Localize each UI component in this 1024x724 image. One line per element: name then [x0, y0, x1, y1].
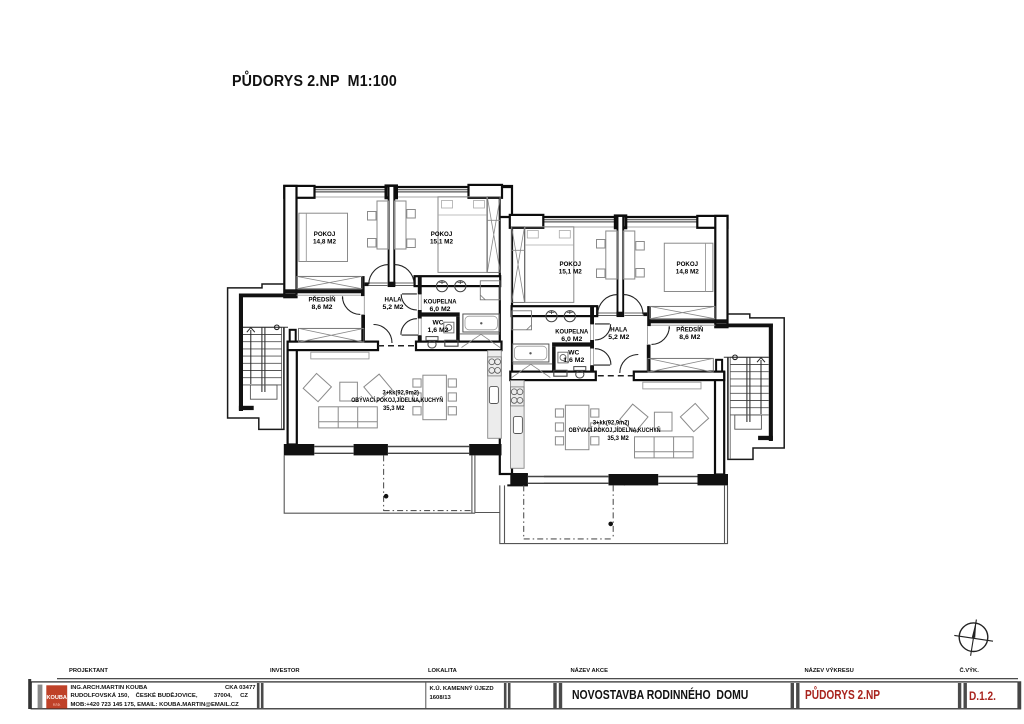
- svg-text:5,2 M2: 5,2 M2: [608, 334, 630, 341]
- svg-text:8,6 M2: 8,6 M2: [679, 334, 701, 341]
- svg-text:6,0 M2: 6,0 M2: [561, 336, 583, 343]
- svg-text:KOUPELNA: KOUPELNA: [555, 329, 588, 336]
- svg-text:PŘEDSÍŇ: PŘEDSÍŇ: [676, 326, 704, 334]
- svg-text:14,8 M2: 14,8 M2: [676, 269, 700, 276]
- svg-text:1,6 M2: 1,6 M2: [563, 357, 585, 364]
- svg-text:15,1 M2: 15,1 M2: [430, 239, 454, 246]
- svg-text:KOUPELNA: KOUPELNA: [424, 299, 457, 306]
- svg-text:1,6 M2: 1,6 M2: [428, 327, 450, 334]
- svg-text:3+kk(92,9m2): 3+kk(92,9m2): [382, 389, 419, 396]
- svg-text:3+kk(92,9m2): 3+kk(92,9m2): [593, 419, 630, 426]
- svg-text:HALA: HALA: [610, 327, 628, 334]
- svg-text:8,6 M2: 8,6 M2: [312, 304, 334, 311]
- svg-text:KOUBA: KOUBA: [46, 695, 67, 701]
- svg-text:HALA: HALA: [385, 297, 403, 304]
- svg-text:6,0 M2: 6,0 M2: [430, 306, 452, 313]
- svg-text:14,8 M2: 14,8 M2: [313, 239, 337, 246]
- svg-text:POKOJ: POKOJ: [314, 231, 336, 238]
- svg-text:35,3 M2: 35,3 M2: [607, 435, 629, 442]
- svg-text:OBÝVACÍ POKOJ,JÍDELNA,KUCHYŇ: OBÝVACÍ POKOJ,JÍDELNA,KUCHYŇ: [351, 396, 443, 404]
- svg-text:15,1 M2: 15,1 M2: [559, 269, 583, 276]
- svg-text:POKOJ: POKOJ: [431, 231, 453, 238]
- svg-text:WC: WC: [568, 350, 580, 357]
- svg-text:s.r.o.: s.r.o.: [53, 703, 61, 707]
- svg-text:35,3 M2: 35,3 M2: [383, 405, 405, 412]
- svg-text:WC: WC: [433, 320, 445, 327]
- svg-text:PŘEDSÍŇ: PŘEDSÍŇ: [309, 296, 337, 304]
- svg-text:5,2 M2: 5,2 M2: [383, 304, 405, 311]
- svg-text:POKOJ: POKOJ: [560, 261, 582, 268]
- svg-text:POKOJ: POKOJ: [677, 261, 699, 268]
- svg-text:OBÝVACÍ POKOJ,JÍDELNA,KUCHYŇ: OBÝVACÍ POKOJ,JÍDELNA,KUCHYŇ: [569, 426, 661, 434]
